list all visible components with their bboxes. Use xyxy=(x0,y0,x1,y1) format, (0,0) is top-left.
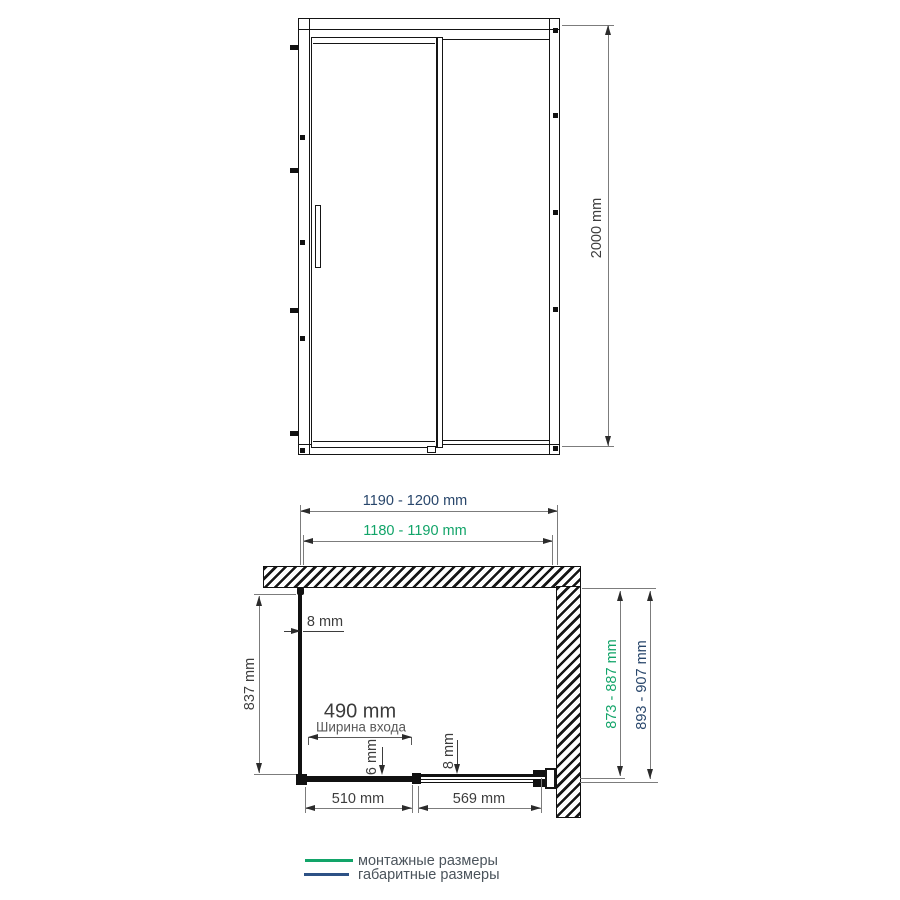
fixed-panel-bottom-line xyxy=(443,440,549,441)
ext-line xyxy=(418,786,419,813)
ext-line xyxy=(582,588,656,589)
arrow-right xyxy=(531,805,541,811)
fastener-dot xyxy=(553,307,558,312)
center-mullion xyxy=(437,37,443,448)
height-dim-label: 2000 mm xyxy=(589,198,605,258)
fastener-dot xyxy=(553,28,558,33)
ext-line xyxy=(412,785,413,813)
side-depth-label: 837 mm xyxy=(242,658,258,710)
frame-left-profile-line xyxy=(309,19,310,454)
ext-line xyxy=(303,535,304,565)
ext-line xyxy=(552,535,553,565)
arrow-down xyxy=(454,764,460,774)
entry-width-line xyxy=(308,737,412,738)
sliding-door-panel xyxy=(311,37,437,448)
arrow-up xyxy=(605,25,611,35)
side-glass-panel xyxy=(298,593,302,776)
door-panel-plan xyxy=(307,776,413,782)
arrow-left xyxy=(305,805,315,811)
door-roller-guide xyxy=(427,446,436,453)
arrow-up xyxy=(647,591,653,601)
door-top-rail-line xyxy=(313,43,435,44)
wall-profile xyxy=(545,768,556,789)
shower-enclosure-drawing: 2000 mm 1190 - 1200 mm 1180 - 1190 mm 8 … xyxy=(0,0,900,900)
glass-clamp-slit xyxy=(533,777,545,779)
fastener-dot xyxy=(553,446,558,451)
leader-underline xyxy=(303,631,344,632)
fastener-dot xyxy=(300,336,305,341)
mounting-depth-label: 873 - 887 mm xyxy=(604,639,620,728)
arrow-left xyxy=(418,805,428,811)
door-width-line xyxy=(305,808,412,809)
arrow-down xyxy=(256,763,262,773)
ext-line xyxy=(541,778,542,813)
arrow-up xyxy=(256,596,262,606)
ext-line xyxy=(305,787,306,813)
ext-line xyxy=(254,594,296,595)
arrow-up xyxy=(617,591,623,601)
door-width-label: 510 mm xyxy=(332,791,384,807)
wall-anchor-node xyxy=(297,587,304,595)
arrow-down xyxy=(617,766,623,776)
fixed-panel-top-line xyxy=(443,39,549,40)
ext-line xyxy=(580,782,658,783)
leader-line xyxy=(457,740,458,765)
wall-tab xyxy=(290,308,299,313)
ext-line xyxy=(557,505,558,565)
legend-overall-swatch xyxy=(304,873,349,876)
arrow-down xyxy=(647,769,653,779)
fastener-dot xyxy=(553,113,558,118)
wall-tab xyxy=(290,45,299,50)
fixed-panel-inner-line xyxy=(421,779,533,780)
corner-post xyxy=(296,774,307,785)
arrow-left xyxy=(303,538,313,544)
wall-top xyxy=(263,566,581,588)
side-depth-line xyxy=(259,596,260,773)
mounting-width-label: 1180 - 1190 mm xyxy=(363,523,466,539)
mounting-depth-line xyxy=(620,591,621,776)
mid-bracket xyxy=(412,773,421,784)
arrow-right xyxy=(402,805,412,811)
wall-right xyxy=(556,586,581,818)
height-dim-ext-bottom xyxy=(562,446,614,447)
height-dim-line xyxy=(608,25,609,446)
overall-depth-label: 893 - 907 mm xyxy=(634,640,650,729)
fastener-dot xyxy=(300,240,305,245)
fastener-dot xyxy=(300,448,305,453)
frame-top-bar-line xyxy=(299,29,559,30)
panel-width-label: 569 mm xyxy=(453,791,505,807)
arrow-right xyxy=(402,734,412,740)
arrow-down xyxy=(379,765,385,775)
panel-width-line xyxy=(418,808,541,809)
arrow-left xyxy=(300,508,310,514)
wall-glass-thickness-label: 8 mm xyxy=(307,614,343,630)
ext-line xyxy=(300,505,301,565)
entry-width-label: Ширина входа xyxy=(316,720,406,735)
door-handle xyxy=(315,205,321,268)
mounting-width-line xyxy=(303,541,553,542)
wall-tab xyxy=(290,168,299,173)
frame-right-profile-line xyxy=(549,19,550,454)
legend-overall-label: габаритные размеры xyxy=(358,867,500,883)
wall-tab xyxy=(290,431,299,436)
arrow-down xyxy=(605,436,611,446)
leader-line xyxy=(382,747,383,766)
arrow-left xyxy=(308,734,318,740)
fastener-dot xyxy=(553,210,558,215)
ext-line xyxy=(254,774,296,775)
arrow-right xyxy=(291,628,301,634)
ext-line xyxy=(580,778,625,779)
legend-mounting-swatch xyxy=(305,859,353,862)
door-bottom-rail-line xyxy=(313,441,435,442)
overall-width-label: 1190 - 1200 mm xyxy=(363,493,468,509)
door-glass-thickness-label: 6 mm xyxy=(364,739,380,775)
overall-width-line xyxy=(300,511,558,512)
overall-depth-line xyxy=(650,591,651,779)
fastener-dot xyxy=(300,135,305,140)
